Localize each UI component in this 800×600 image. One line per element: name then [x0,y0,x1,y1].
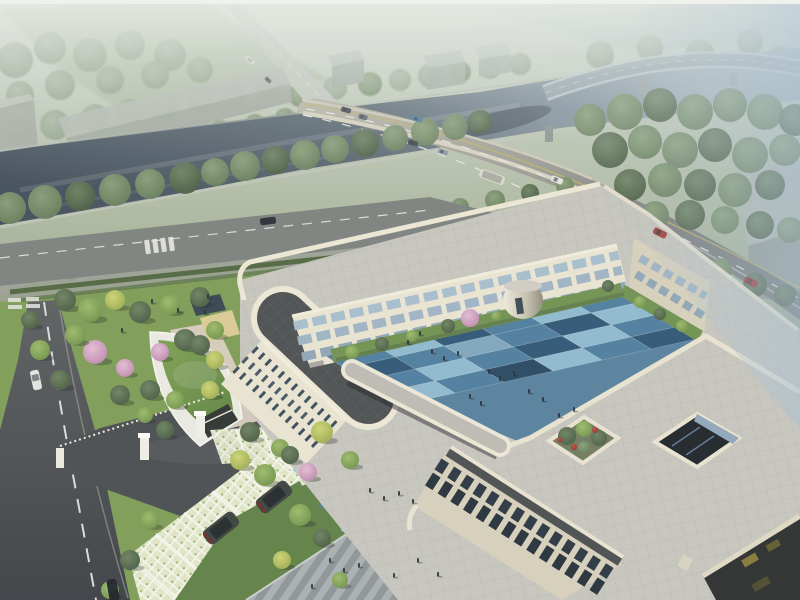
top-border-strip [0,0,800,4]
global-veil [0,0,800,600]
rendering-canvas [0,0,800,600]
aerial-rendering [0,0,800,600]
